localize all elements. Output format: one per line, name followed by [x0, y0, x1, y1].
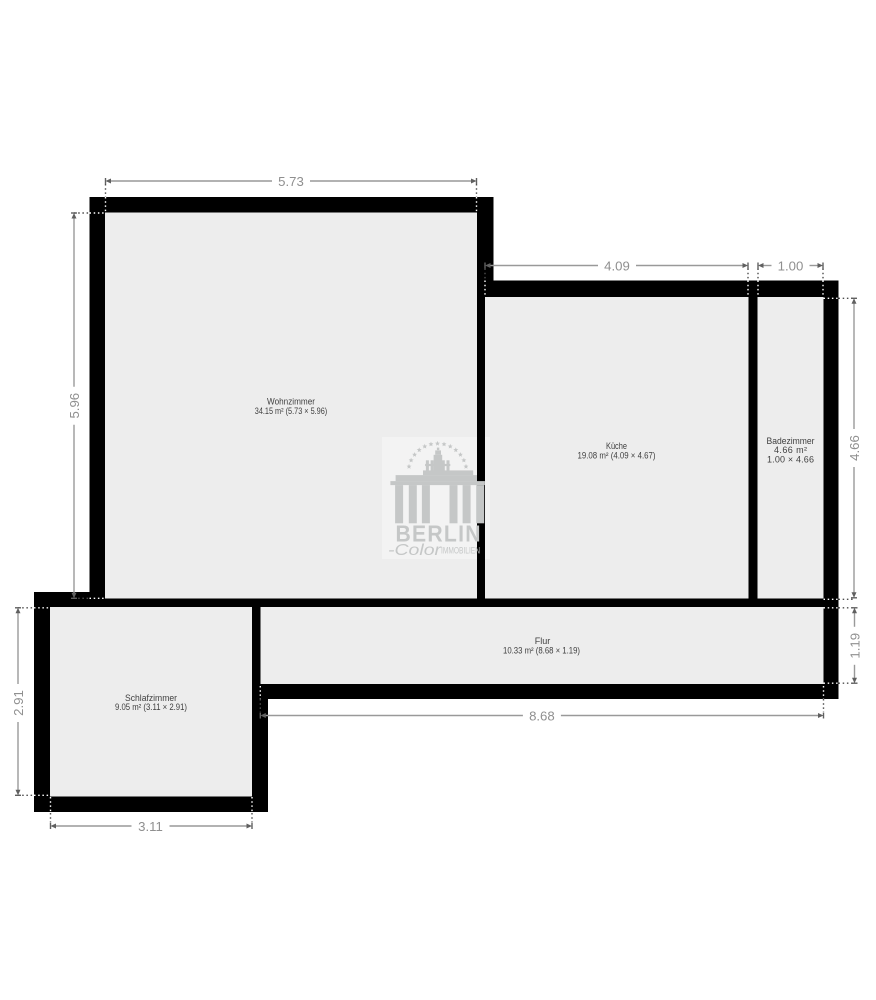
- svg-text:Wohnzimmer: Wohnzimmer: [267, 396, 315, 406]
- svg-text:1.00 × 4.66: 1.00 × 4.66: [767, 455, 814, 465]
- svg-text:-Color: -Color: [388, 542, 442, 559]
- svg-text:19.08 m² (4.09 × 4.67): 19.08 m² (4.09 × 4.67): [578, 450, 656, 460]
- svg-text:8.68: 8.68: [529, 708, 555, 723]
- svg-text:4.66: 4.66: [847, 435, 862, 461]
- svg-text:2.91: 2.91: [11, 690, 26, 716]
- svg-text:IMMOBILIEN: IMMOBILIEN: [441, 546, 480, 556]
- svg-text:34.15 m² (5.73 × 5.96): 34.15 m² (5.73 × 5.96): [255, 406, 328, 416]
- svg-text:4.09: 4.09: [604, 258, 630, 273]
- svg-text:5.96: 5.96: [67, 393, 82, 419]
- svg-text:3.11: 3.11: [138, 819, 163, 834]
- svg-text:1.00: 1.00: [778, 258, 804, 273]
- svg-text:1.19: 1.19: [847, 633, 862, 659]
- svg-text:5.73: 5.73: [278, 174, 304, 189]
- svg-text:10.33 m² (8.68 × 1.19): 10.33 m² (8.68 × 1.19): [503, 645, 580, 655]
- svg-text:9.05 m² (3.11 × 2.91): 9.05 m² (3.11 × 2.91): [115, 702, 187, 712]
